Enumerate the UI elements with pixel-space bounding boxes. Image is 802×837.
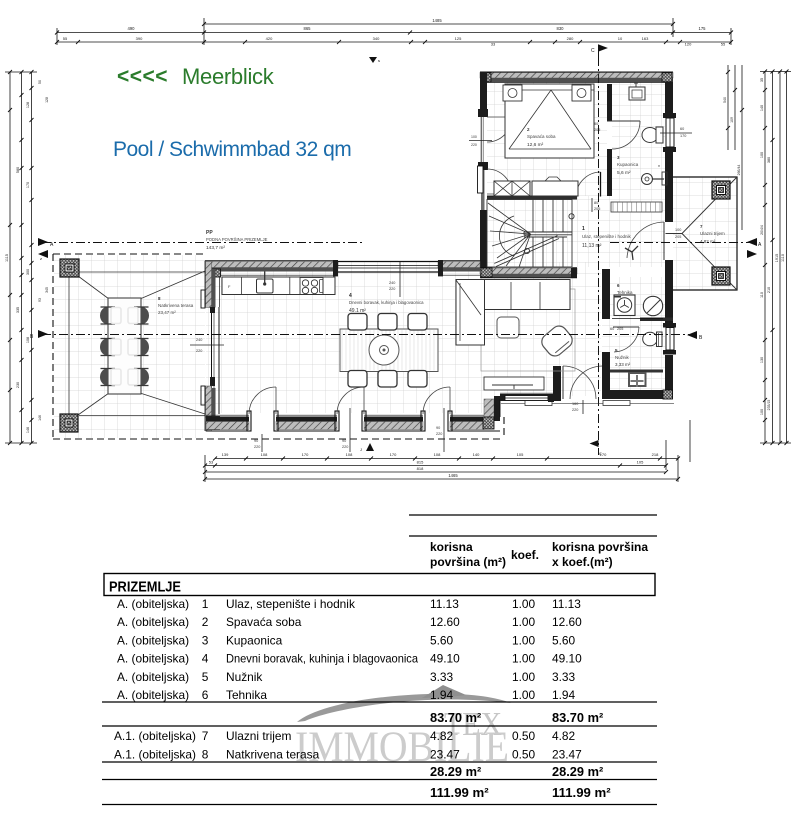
svg-text:865: 865 (304, 26, 312, 31)
svg-text:A.1. (obiteljska): A.1. (obiteljska) (114, 747, 196, 761)
svg-text:0.50: 0.50 (512, 729, 536, 743)
svg-text:1.00: 1.00 (512, 633, 536, 647)
svg-text:Ulaz, stepenište i hodnik: Ulaz, stepenište i hodnik (226, 597, 355, 611)
svg-text:100: 100 (760, 152, 764, 158)
svg-text:220: 220 (572, 408, 578, 412)
svg-text:100: 100 (675, 228, 681, 232)
svg-text:5: 5 (202, 670, 209, 684)
svg-text:0.50: 0.50 (512, 747, 536, 761)
svg-text:1.94: 1.94 (430, 688, 454, 702)
svg-text:170: 170 (302, 452, 309, 457)
svg-text:490: 490 (128, 26, 136, 31)
svg-text:Dnevni boravak, kuhinja i blag: Dnevni boravak, kuhinja i blagovaonica (226, 652, 418, 666)
svg-text:93: 93 (38, 298, 42, 302)
svg-text:33: 33 (491, 42, 496, 47)
svg-text:1115: 1115 (5, 254, 9, 262)
svg-text:koef.: koef. (511, 548, 539, 562)
svg-text:12,6 m²: 12,6 m² (527, 142, 544, 148)
svg-text:108: 108 (26, 337, 30, 343)
svg-text:Kupaonica: Kupaonica (617, 162, 639, 167)
svg-text:23,47 m²: 23,47 m² (158, 310, 176, 315)
svg-text:125: 125 (455, 36, 462, 41)
svg-text:3.33: 3.33 (552, 670, 576, 684)
svg-text:A. (obiteljska): A. (obiteljska) (117, 597, 189, 611)
svg-text:23.47: 23.47 (552, 747, 582, 761)
svg-text:Ulaz, stepenište i hodnik: Ulaz, stepenište i hodnik (582, 234, 632, 239)
svg-text:PODNA POVRŠINA PRIZEMLJE: PODNA POVRŠINA PRIZEMLJE (206, 237, 268, 242)
svg-text:7: 7 (202, 729, 209, 743)
svg-text:830: 830 (557, 26, 565, 31)
svg-text:83.70 m²: 83.70 m² (430, 710, 481, 725)
svg-text:108: 108 (346, 452, 353, 457)
svg-text:128: 128 (26, 102, 30, 108)
svg-text:240: 240 (389, 281, 395, 285)
svg-text:540: 540 (723, 97, 727, 103)
svg-text:11.13: 11.13 (552, 597, 581, 611)
svg-text:Natkrivena terasa: Natkrivena terasa (226, 747, 320, 761)
svg-text:380: 380 (767, 157, 771, 163)
svg-text:100: 100 (760, 409, 764, 415)
svg-text:28.29 m²: 28.29 m² (552, 764, 603, 779)
svg-text:60: 60 (610, 327, 614, 331)
svg-text:korisna: korisna (430, 540, 473, 554)
svg-text:220: 220 (389, 287, 395, 291)
svg-text:55: 55 (721, 42, 726, 47)
svg-text:230: 230 (16, 382, 20, 388)
svg-text:2: 2 (202, 615, 209, 629)
svg-text:Dnevni boravak, kuhinja i blag: Dnevni boravak, kuhinja i blagovaonica (349, 300, 424, 305)
svg-text:105: 105 (637, 460, 644, 465)
svg-text:205: 205 (675, 235, 681, 239)
svg-text:170: 170 (390, 452, 397, 457)
svg-text:146: 146 (26, 427, 30, 433)
svg-text:Spavaća soba: Spavaća soba (527, 134, 556, 139)
svg-text:5,6 m²: 5,6 m² (617, 170, 631, 176)
svg-text:218: 218 (652, 452, 659, 457)
svg-text:Spavaća soba: Spavaća soba (226, 615, 302, 629)
svg-text:Meerblick: Meerblick (182, 64, 275, 89)
svg-text:90: 90 (342, 439, 346, 443)
svg-text:3,33 m²: 3,33 m² (615, 362, 631, 367)
svg-text:140: 140 (760, 105, 764, 111)
svg-text:20/4/4: 20/4/4 (760, 225, 764, 235)
svg-text:170: 170 (26, 182, 30, 188)
svg-text:A. (obiteljska): A. (obiteljska) (117, 688, 189, 702)
svg-text:1465: 1465 (448, 473, 458, 478)
svg-text:J: J (360, 447, 362, 452)
svg-text:220: 220 (471, 143, 477, 147)
svg-text:818: 818 (417, 466, 424, 471)
svg-text:12.60: 12.60 (552, 615, 582, 629)
svg-text:*: * (658, 165, 660, 171)
svg-text:105: 105 (517, 452, 524, 457)
svg-text:120: 120 (685, 42, 692, 47)
svg-text:površina (m²): površina (m²) (430, 555, 506, 569)
svg-text:28.29 m²: 28.29 m² (430, 764, 481, 779)
svg-text:1485: 1485 (432, 18, 442, 23)
svg-text:580: 580 (16, 167, 20, 173)
svg-text:A. (obiteljska): A. (obiteljska) (117, 652, 189, 666)
svg-text:100: 100 (471, 135, 477, 139)
svg-text:Natkrivena terasa: Natkrivena terasa (158, 303, 194, 308)
svg-text:korisna površina: korisna površina (552, 540, 648, 554)
svg-text:420: 420 (266, 36, 273, 41)
svg-text:110: 110 (760, 292, 764, 298)
svg-text:175: 175 (699, 26, 707, 31)
svg-text:90: 90 (436, 426, 440, 430)
svg-text:55: 55 (63, 36, 68, 41)
svg-text:1.94: 1.94 (552, 688, 576, 702)
svg-text:Ulazni trijem: Ulazni trijem (700, 231, 725, 236)
svg-text:233/15: 233/15 (767, 400, 771, 411)
svg-text:35: 35 (760, 78, 764, 82)
svg-text:60: 60 (680, 127, 684, 131)
svg-text:130: 130 (760, 357, 764, 363)
svg-text:1.00: 1.00 (512, 597, 536, 611)
svg-text:146: 146 (38, 415, 42, 421)
svg-text:335: 335 (16, 307, 20, 313)
svg-text:4: 4 (202, 652, 209, 666)
svg-text:Ulazni trijem: Ulazni trijem (226, 729, 292, 743)
svg-text:1.00: 1.00 (512, 688, 536, 702)
svg-text:205: 205 (594, 128, 600, 132)
svg-text:A. (obiteljska): A. (obiteljska) (117, 615, 189, 629)
svg-text:111.99 m²: 111.99 m² (552, 785, 611, 800)
svg-text:11.13: 11.13 (430, 597, 459, 611)
svg-text:220: 220 (254, 445, 260, 449)
svg-text:108: 108 (261, 452, 268, 457)
svg-text:A.1. (obiteljska): A.1. (obiteljska) (114, 729, 196, 743)
svg-text:83.70 m²: 83.70 m² (552, 710, 603, 725)
svg-text:205: 205 (617, 327, 623, 331)
svg-text:Kupaonica: Kupaonica (226, 633, 283, 647)
svg-text:3: 3 (202, 633, 209, 647)
svg-text:PRIZEMLJE: PRIZEMLJE (109, 579, 181, 596)
svg-text:210: 210 (767, 287, 771, 293)
svg-text:220: 220 (196, 349, 202, 353)
svg-text:1110: 1110 (781, 254, 785, 262)
svg-text:5.60: 5.60 (552, 633, 576, 647)
svg-text:266/44: 266/44 (737, 165, 741, 176)
svg-text:Tehnika: Tehnika (617, 290, 633, 295)
svg-text:<<<<: <<<< (117, 65, 168, 88)
svg-text:1.00: 1.00 (512, 652, 536, 666)
svg-text:Nužnik: Nužnik (226, 670, 262, 684)
svg-text:A. (obiteljska): A. (obiteljska) (117, 633, 189, 647)
svg-text:4.82: 4.82 (552, 729, 576, 743)
svg-text:170: 170 (680, 134, 686, 138)
svg-text:5.60: 5.60 (430, 633, 454, 647)
svg-text:4: 4 (349, 293, 352, 299)
svg-text:163: 163 (642, 36, 649, 41)
svg-text:1915: 1915 (775, 254, 779, 262)
svg-text:1.00: 1.00 (512, 670, 536, 684)
svg-text:109: 109 (730, 117, 734, 123)
svg-text:143,7 m²: 143,7 m² (206, 245, 225, 251)
svg-text:140: 140 (473, 452, 480, 457)
svg-text:6: 6 (202, 688, 209, 702)
svg-text:x koef.(m²): x koef.(m²) (552, 555, 613, 569)
svg-text:49.10: 49.10 (552, 652, 582, 666)
svg-text:s: s (378, 58, 380, 63)
svg-text:4,82 m²: 4,82 m² (700, 239, 716, 244)
svg-text:390: 390 (136, 36, 143, 41)
svg-text:Pool / Schwimmbad 32 qm: Pool / Schwimmbad 32 qm (113, 138, 351, 161)
svg-text:23.47: 23.47 (430, 747, 460, 761)
svg-text:1: 1 (202, 597, 209, 611)
svg-text:815: 815 (417, 460, 424, 465)
svg-text:160: 160 (572, 402, 578, 406)
svg-text:345: 345 (45, 287, 49, 293)
svg-text:C: C (591, 48, 595, 54)
svg-text:128: 128 (45, 97, 49, 103)
svg-text:12.60: 12.60 (430, 615, 460, 629)
svg-text:Tehnika: Tehnika (226, 688, 267, 702)
svg-text:80: 80 (594, 201, 598, 205)
svg-text:1.00: 1.00 (512, 615, 536, 629)
svg-text:111.99 m²: 111.99 m² (430, 785, 489, 800)
svg-text:280: 280 (567, 36, 574, 41)
svg-text:49.10: 49.10 (430, 652, 460, 666)
svg-text:108: 108 (434, 452, 441, 457)
svg-text:1: 1 (582, 226, 585, 232)
svg-text:90: 90 (254, 439, 258, 443)
svg-text:205: 205 (594, 207, 600, 211)
svg-text:8: 8 (202, 747, 209, 761)
svg-text:A. (obiteljska): A. (obiteljska) (117, 670, 189, 684)
svg-text:220: 220 (342, 445, 348, 449)
svg-text:220: 220 (436, 432, 442, 436)
svg-text:139: 139 (222, 452, 229, 457)
svg-text:50: 50 (38, 80, 42, 84)
svg-text:Nužnik: Nužnik (615, 355, 630, 360)
svg-text:PP: PP (206, 230, 213, 236)
svg-text:3.33: 3.33 (430, 670, 454, 684)
svg-text:340: 340 (373, 36, 380, 41)
svg-text:10: 10 (618, 36, 623, 41)
svg-text:53: 53 (209, 460, 214, 465)
svg-text:80: 80 (594, 122, 598, 126)
svg-text:240: 240 (196, 338, 202, 342)
svg-text:300: 300 (26, 269, 30, 275)
svg-text:z: z (40, 256, 42, 261)
svg-text:4.82: 4.82 (430, 729, 454, 743)
svg-text:170: 170 (600, 452, 607, 457)
